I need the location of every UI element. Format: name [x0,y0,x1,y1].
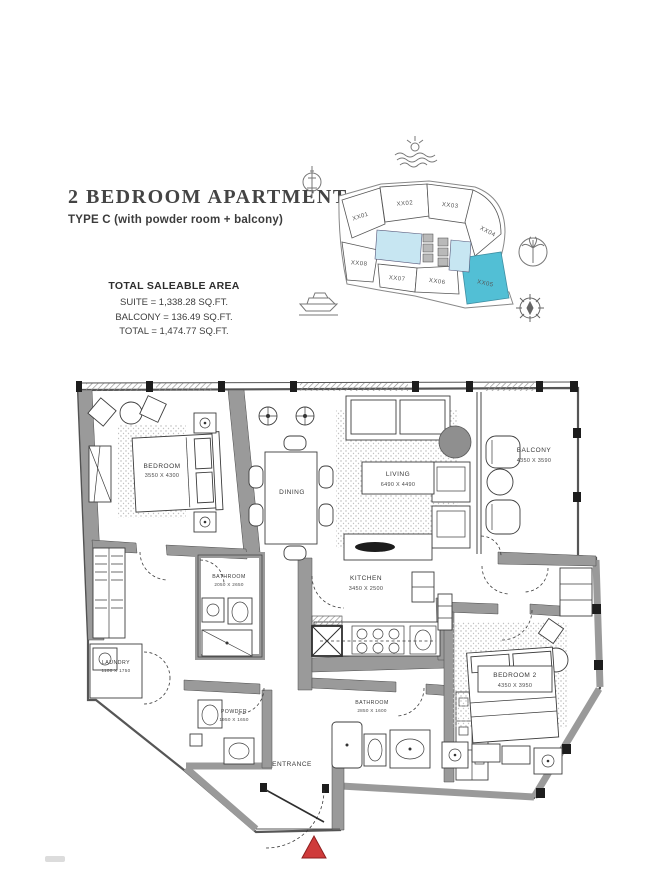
compass-icon [516,294,544,322]
powder-dims: 1950 X 1650 [219,717,249,722]
closet-rails [93,548,125,638]
bathroom1-label: BATHROOM [212,574,246,580]
core-corridor [375,230,422,264]
bedroom2-dims: 4350 X 3950 [498,683,533,689]
area-summary: TOTAL SALEABLE AREA SUITE = 1,338.28 SQ.… [86,280,262,340]
area-total: TOTAL = 1,474.77 SQ.FT. [86,325,262,340]
area-heading: TOTAL SALEABLE AREA [86,280,262,292]
core-lobby [449,240,471,272]
keyplan-building: XX01 XX02 XX03 XX04 XX05 XX06 XX07 XX08 [339,181,513,308]
floor-plan: BEDROOM 3550 X 4300 DINING [40,370,640,873]
tv-console [344,534,432,560]
area-suite: SUITE = 1,338.28 SQ.FT. [86,296,262,311]
floorplan-page: 2 BEDROOM APARTMENT TYPE C (with powder … [0,0,660,873]
living-dims: 6490 X 4490 [381,482,416,488]
print-artifact [45,856,65,862]
bathroom2-dims: 2850 X 1600 [357,708,387,713]
duct-shaft [312,616,342,656]
door-jamb-right [322,784,329,793]
bathroom1-dims: 2050 X 2650 [214,582,244,587]
bed-2 [467,647,559,743]
entrance-triangle-marker [302,836,326,858]
dining-label: DINING [279,489,305,496]
bedroom-label: BEDROOM [143,463,180,470]
wardrobe-mirror [89,446,111,502]
key-plan: XX01 XX02 XX03 XX04 XX05 XX06 XX07 XX08 [295,122,565,337]
antenna-icon [303,166,321,198]
bedroom-dims: 3550 X 4300 [145,473,180,479]
laundry-dims: 1100 X 1750 [101,668,130,673]
living-area: LIVING 6490 X 4490 [336,396,471,560]
waves-sun-icon [395,136,437,167]
area-balcony: BALCONY = 136.49 SQ.FT. [86,311,262,326]
hall-closet [560,568,592,616]
tall-cabinet [438,594,452,630]
bedroom2-label: BEDROOM 2 [493,672,537,679]
bathroom2-label: BATHROOM [355,700,389,706]
laundry-label: LAUNDRY [102,660,130,666]
powder-label: POWDER [221,709,247,715]
entrance-label: ENTRANCE [272,761,312,768]
kitchen-label: KITCHEN [350,575,382,582]
planter [439,426,471,458]
boat-icon [299,293,338,315]
bedroom-2: BEDROOM 2 4350 X 3950 [442,618,568,774]
fridge [412,572,434,602]
kitchen-dims: 3450 X 2500 [349,586,384,592]
balcony-label: BALCONY [517,447,552,454]
balcony-dims: 4350 X 3590 [517,458,552,464]
palm-tree-icon [519,237,547,266]
living-label: LIVING [386,471,410,478]
living-label-box [362,462,434,494]
sofa [346,396,450,440]
